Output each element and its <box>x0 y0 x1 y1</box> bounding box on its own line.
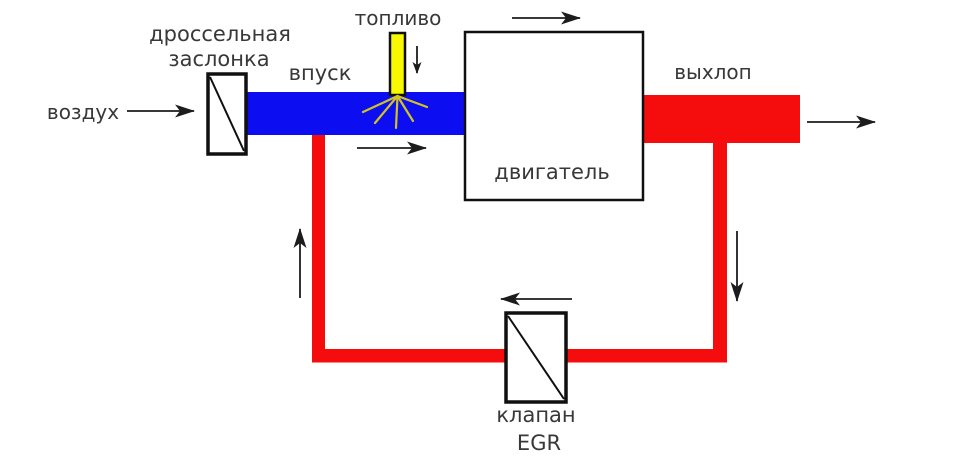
egr-valve-label-line2: EGR <box>517 431 561 455</box>
throttle-label-line2: заслонка <box>168 47 269 71</box>
exhaust-label: выхлоп <box>674 60 752 84</box>
egr-system-diagram: воздух дроссельная заслонка впуск топлив… <box>0 0 980 463</box>
intake-label: впуск <box>289 61 352 85</box>
egr-valve-label-line1: клапан <box>496 403 575 427</box>
fuel-spray-ray <box>396 96 398 128</box>
egr-pipe-left <box>312 135 325 363</box>
diagram-canvas: воздух дроссельная заслонка впуск топлив… <box>0 0 980 463</box>
egr-pipe-right <box>713 142 727 363</box>
throttle-label-line1: дроссельная <box>149 22 291 46</box>
intake-pipe <box>246 92 465 135</box>
exhaust-pipe <box>643 95 800 143</box>
fuel-label: топливо <box>355 6 442 30</box>
engine-label: двигатель <box>494 160 609 184</box>
fuel-injector <box>390 33 405 95</box>
air-label: воздух <box>47 100 119 124</box>
